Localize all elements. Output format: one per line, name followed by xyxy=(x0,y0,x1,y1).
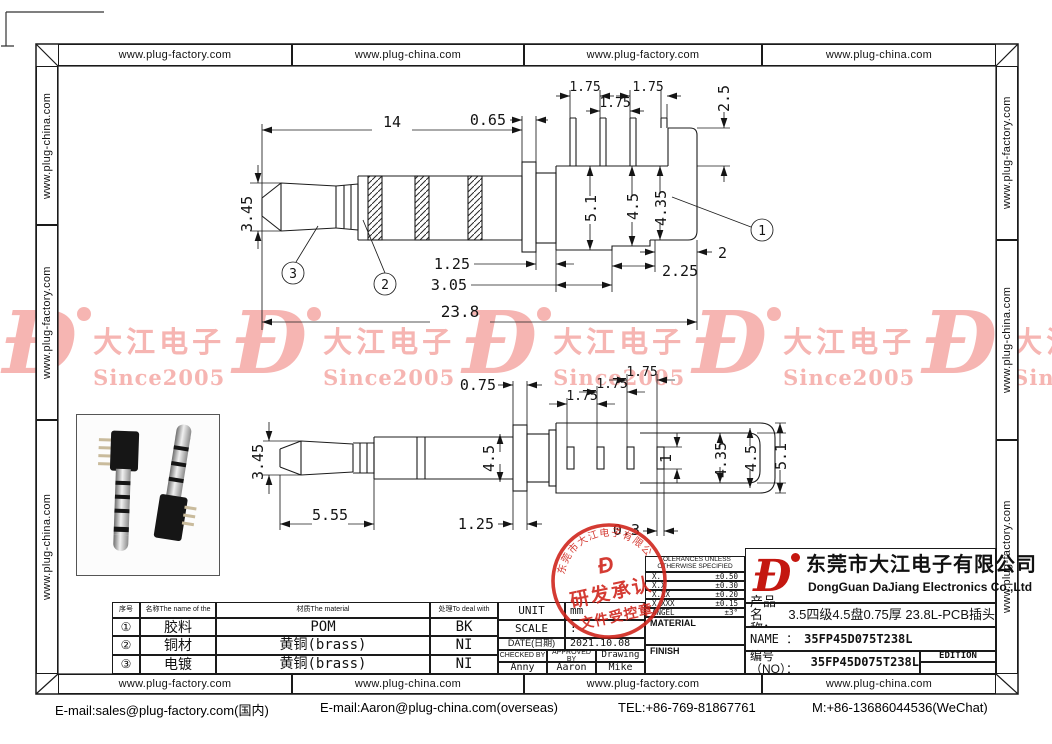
edition-label: EDITION xyxy=(920,651,996,662)
company-name-cn: 东莞市大江电子有限公司 xyxy=(806,555,1037,576)
material-row1-deal: BK xyxy=(430,618,498,636)
balloon-1: 1 xyxy=(758,224,766,239)
company-logo: Đ xyxy=(753,551,791,602)
crop-mark xyxy=(1,12,104,46)
dim-bot-h1: 5.1 xyxy=(772,443,790,470)
dim-bot-pitch1: 1.75 xyxy=(566,389,597,404)
top-view-dimensions xyxy=(250,90,773,330)
dim-top-pitch3: 1.75 xyxy=(599,96,630,111)
materials-header-no: 序号 xyxy=(112,602,140,618)
number-label: 编号（NO）： xyxy=(750,650,807,675)
dim-top-pitch2: 1.75 xyxy=(632,80,663,95)
finish-section-label: FINISH xyxy=(645,645,745,674)
material-row3-name: 电镀 xyxy=(140,655,216,674)
photo-connector-1 xyxy=(99,430,149,560)
tol4-value: ±0.15 xyxy=(715,600,738,608)
product-name-value: 3.5四级4.5盘0.75厚 23.8L-PCB插头 xyxy=(788,608,995,622)
dim-total-length: 23.8 xyxy=(441,302,480,321)
photo-connector-2 xyxy=(149,422,215,560)
approved-by-label: APPROVED BY xyxy=(547,650,596,662)
dim-top-flange: 0.65 xyxy=(470,111,506,129)
dim-bot-tip-diameter: 3.45 xyxy=(249,444,267,480)
dim-top-w1: 2 xyxy=(718,244,727,262)
name-value: 35FP45D075T238L xyxy=(804,633,912,646)
material-row3-deal: NI xyxy=(430,655,498,674)
dim-top-neck: 1.25 xyxy=(434,255,470,273)
tol2-value: ±0.30 xyxy=(715,582,738,590)
material-row1-material: POM xyxy=(216,618,430,636)
material-row2-deal: NI xyxy=(430,636,498,655)
number-row: 编号（NO）： 35FP45D075T238L xyxy=(745,651,920,674)
tol1-value: ±0.50 xyxy=(715,573,738,581)
bottom-view-outline xyxy=(280,423,775,493)
material-row1-name: 胶料 xyxy=(140,618,216,636)
dim-top-tip-diameter: 3.45 xyxy=(238,196,256,232)
dim-top-h1: 5.1 xyxy=(582,195,600,222)
checked-by-label: CHECKED BY xyxy=(498,650,547,662)
balloon-3: 3 xyxy=(289,267,297,282)
name-row: NAME ： 35FP45D075T238L xyxy=(745,627,996,651)
product-name-row: 产品名称： 3.5四级4.5盘0.75厚 23.8L-PCB插头 xyxy=(745,603,996,627)
materials-header-deal: 处理To deal with xyxy=(430,602,498,618)
material-row3-material: 黄铜(brass) xyxy=(216,655,430,674)
stamp-logo: Đ xyxy=(595,551,616,579)
name-label: NAME ： xyxy=(750,633,798,646)
materials-header-name: 名称The name of the xyxy=(140,602,216,618)
material-row3-no: ③ xyxy=(112,655,140,674)
footer-mobile: M:+86-13686044536(WeChat) xyxy=(812,700,988,715)
product-photo xyxy=(76,414,220,576)
dim-top-w3: 3.05 xyxy=(431,276,467,294)
checked-by-name: Anny xyxy=(498,662,547,674)
dim-top-length: 14 xyxy=(383,113,401,131)
tol3-value: ±0.20 xyxy=(715,591,738,599)
dim-bot-pitch3: 1.75 xyxy=(626,365,657,380)
edition-value xyxy=(920,662,996,674)
dim-bot-pitch2: 1.75 xyxy=(596,377,627,392)
tol5-value: ±3° xyxy=(724,609,738,617)
material-row2-name: 铜材 xyxy=(140,636,216,655)
footer-email-overseas: E-mail:Aaron@plug-china.com(overseas) xyxy=(320,700,558,715)
dim-bot-slot-width: 1 xyxy=(657,454,675,463)
footer-email-cn: E-mail:sales@plug-factory.com(国内) xyxy=(55,700,269,719)
dim-bot-h2: 4.5 xyxy=(742,445,760,472)
dim-top-step-height: 2.5 xyxy=(715,85,733,112)
dim-bot-neck: 1.25 xyxy=(458,515,494,533)
company-name-en: DongGuan DaJiang Electronics Co.,Ltd xyxy=(808,581,1032,594)
dim-bot-tip-length: 5.55 xyxy=(312,506,348,524)
balloon-2: 2 xyxy=(381,278,389,293)
dim-bot-neck-height: 4.5 xyxy=(480,445,498,472)
dim-top-pitch1: 1.75 xyxy=(569,80,600,95)
number-value: 35FP45D075T238L xyxy=(811,656,919,669)
material-row2-no: ② xyxy=(112,636,140,655)
dim-top-h3: 4.35 xyxy=(652,190,670,226)
drawing-label: Drawing xyxy=(596,650,645,662)
material-row2-material: 黄铜(brass) xyxy=(216,636,430,655)
drawing-name: Mike xyxy=(596,662,645,674)
approval-stamp: 东莞市大江电子有限公司 Đ 研发承认 文件受控章 xyxy=(540,514,680,648)
materials-header-material: 材质The material xyxy=(216,602,430,618)
approved-by-name: Aaron xyxy=(547,662,596,674)
dim-bot-h3: 4.35 xyxy=(712,442,730,478)
dim-top-w2: 2.25 xyxy=(662,262,698,280)
footer-tel: TEL:+86-769-81867761 xyxy=(618,700,756,715)
dim-bot-flange: 0.75 xyxy=(460,376,496,394)
material-row1-no: ① xyxy=(112,618,140,636)
drawing-sheet: Đ大江电子Since2005 Đ大江电子Since2005 Đ大江电子Since… xyxy=(0,0,1052,744)
dim-top-h2: 4.5 xyxy=(624,193,642,220)
